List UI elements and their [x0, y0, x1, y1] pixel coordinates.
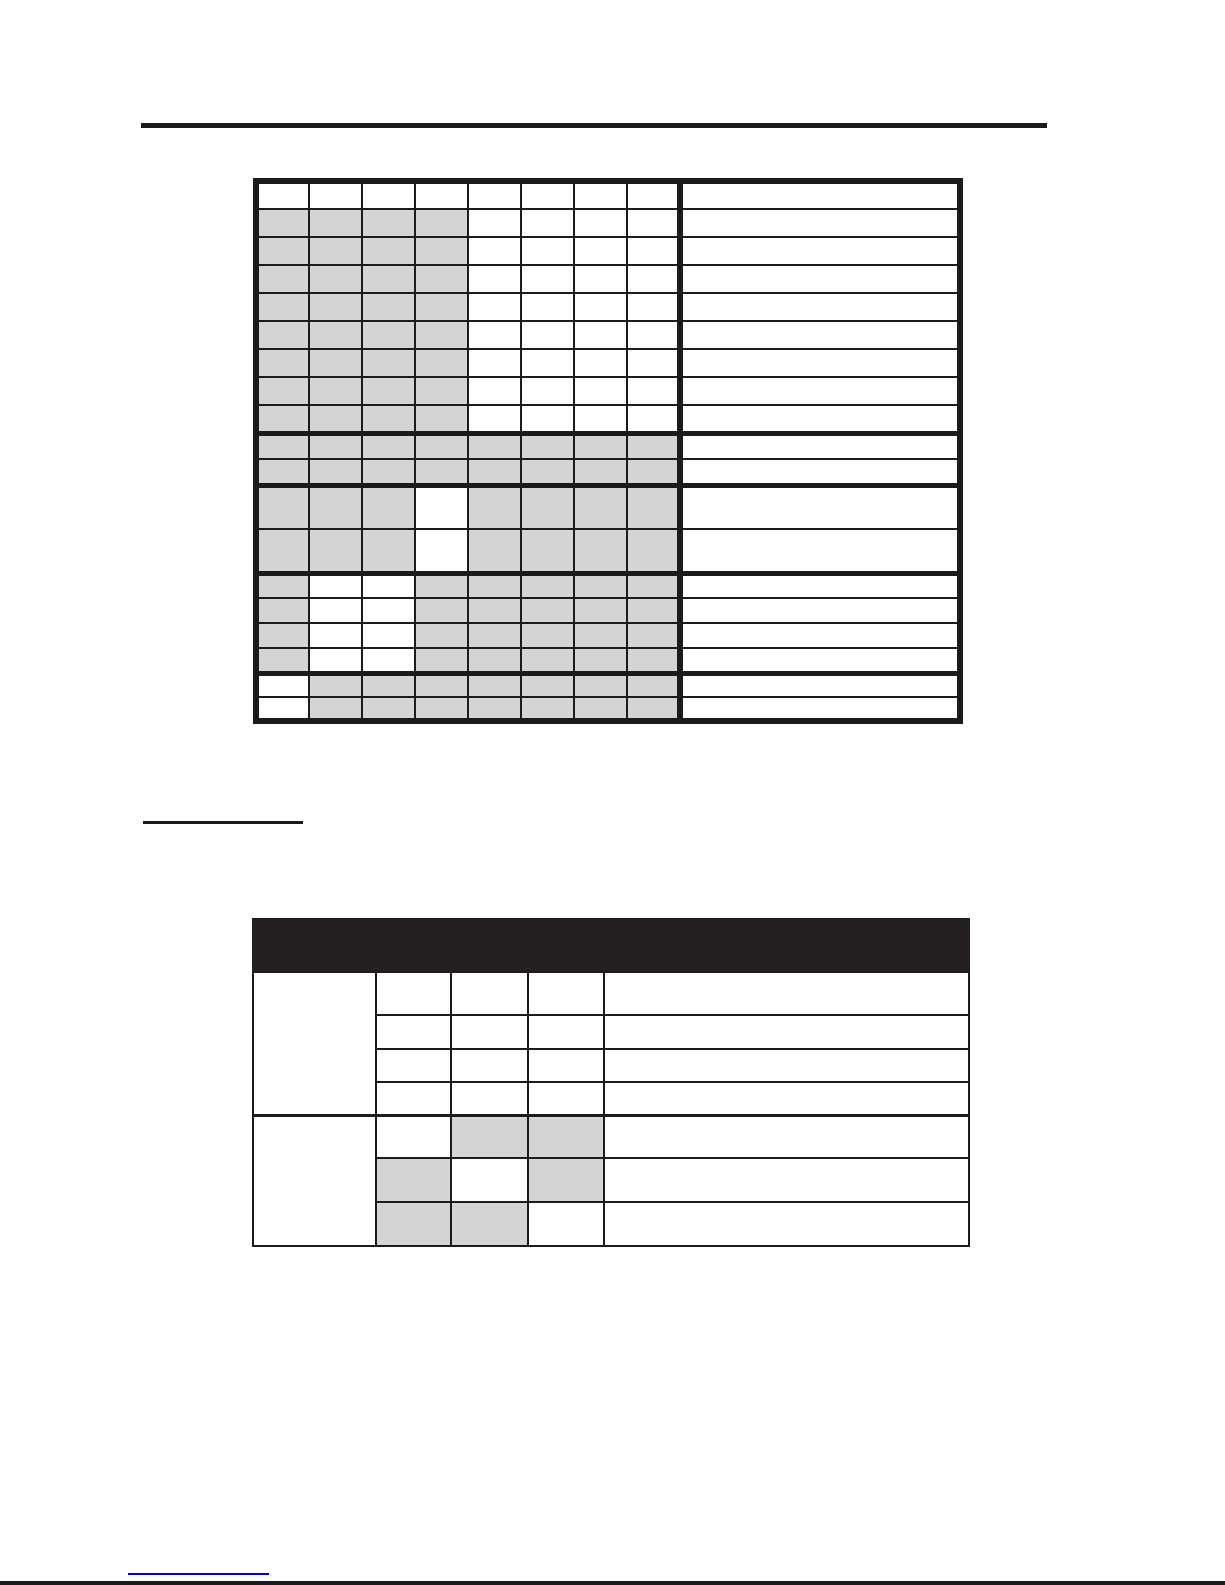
- shaded-switch-cell: [362, 293, 415, 321]
- switch-cell: [627, 181, 680, 209]
- description-cell: [680, 648, 960, 673]
- shaded-switch-cell: [256, 433, 309, 459]
- description-cell: [680, 237, 960, 265]
- switch-cell: [528, 972, 604, 1015]
- shaded-switch-cell: [256, 485, 309, 529]
- shaded-switch-cell: [362, 349, 415, 377]
- switch-cell: [528, 1082, 604, 1115]
- description-cell: [680, 433, 960, 459]
- shaded-switch-cell: [362, 697, 415, 721]
- shaded-switch-cell: [362, 209, 415, 237]
- switch-cell: [468, 293, 521, 321]
- shaded-switch-cell: [574, 697, 627, 721]
- shaded-switch-cell: [415, 349, 468, 377]
- switch-cell: [468, 181, 521, 209]
- switch-cell: [468, 237, 521, 265]
- switch-cell: [362, 573, 415, 598]
- shaded-switch-cell: [415, 321, 468, 349]
- shaded-switch-cell: [362, 237, 415, 265]
- shaded-switch-cell: [468, 598, 521, 623]
- switch-cell: [451, 1158, 528, 1202]
- shaded-switch-cell: [415, 598, 468, 623]
- shaded-switch-cell: [574, 573, 627, 598]
- shaded-switch-cell: [627, 623, 680, 648]
- switch-cell: [468, 321, 521, 349]
- shaded-switch-cell: [574, 529, 627, 573]
- shaded-switch-cell: [362, 529, 415, 573]
- description-cell: [680, 209, 960, 237]
- table-row: [253, 1115, 969, 1158]
- shaded-switch-cell: [627, 648, 680, 673]
- table-row: [253, 972, 969, 1015]
- switch-cell: [528, 1049, 604, 1082]
- shaded-switch-cell: [309, 529, 362, 573]
- shaded-switch-cell: [362, 433, 415, 459]
- shaded-switch-cell: [451, 1202, 528, 1246]
- switch-cell: [415, 529, 468, 573]
- shaded-switch-cell: [415, 293, 468, 321]
- description-cell: [680, 181, 960, 209]
- switch-cell: [521, 405, 574, 433]
- shaded-switch-cell: [627, 433, 680, 459]
- table-row: [256, 459, 960, 485]
- shaded-switch-cell: [362, 377, 415, 405]
- page-bottom-rule: [0, 1581, 1225, 1585]
- switch-cell: [468, 405, 521, 433]
- row-group-label-cell: [253, 1115, 376, 1246]
- shaded-switch-cell: [468, 485, 521, 529]
- description-cell: [604, 1015, 969, 1049]
- shaded-switch-cell: [415, 433, 468, 459]
- shaded-switch-cell: [309, 209, 362, 237]
- shaded-switch-cell: [451, 1115, 528, 1158]
- shaded-switch-cell: [309, 433, 362, 459]
- switch-cell: [362, 648, 415, 673]
- shaded-switch-cell: [256, 349, 309, 377]
- shaded-switch-cell: [521, 529, 574, 573]
- shaded-switch-cell: [468, 529, 521, 573]
- shaded-switch-cell: [309, 265, 362, 293]
- table-row: [256, 209, 960, 237]
- switch-cell: [309, 573, 362, 598]
- switch-cell: [415, 181, 468, 209]
- switch-cell: [415, 485, 468, 529]
- shaded-switch-cell: [256, 405, 309, 433]
- description-cell: [604, 1158, 969, 1202]
- description-cell: [680, 623, 960, 648]
- shaded-switch-cell: [627, 529, 680, 573]
- shaded-switch-cell: [256, 648, 309, 673]
- shaded-switch-cell: [362, 459, 415, 485]
- shaded-switch-cell: [415, 697, 468, 721]
- shaded-switch-cell: [256, 573, 309, 598]
- shaded-switch-cell: [415, 209, 468, 237]
- description-cell: [604, 1202, 969, 1246]
- description-cell: [680, 697, 960, 721]
- description-cell: [680, 293, 960, 321]
- switch-cell: [309, 623, 362, 648]
- shaded-switch-cell: [256, 377, 309, 405]
- switch-cell: [362, 598, 415, 623]
- description-cell: [680, 265, 960, 293]
- switch-cell: [451, 1082, 528, 1115]
- shaded-switch-cell: [309, 293, 362, 321]
- description-cell: [680, 673, 960, 697]
- table-row: [256, 648, 960, 673]
- switch-cell: [574, 321, 627, 349]
- switch-cell: [528, 1015, 604, 1049]
- shaded-switch-cell: [574, 648, 627, 673]
- shaded-switch-cell: [574, 459, 627, 485]
- shaded-switch-cell: [627, 598, 680, 623]
- shaded-switch-cell: [256, 623, 309, 648]
- shaded-switch-cell: [468, 648, 521, 673]
- description-cell: [604, 1049, 969, 1082]
- switch-cell: [574, 181, 627, 209]
- switch-cell: [468, 377, 521, 405]
- switch-cell: [627, 209, 680, 237]
- shaded-switch-cell: [256, 459, 309, 485]
- table-row: [256, 181, 960, 209]
- shaded-switch-cell: [362, 485, 415, 529]
- shaded-switch-cell: [521, 697, 574, 721]
- shaded-switch-cell: [574, 485, 627, 529]
- switch-cell: [521, 209, 574, 237]
- description-cell: [680, 321, 960, 349]
- shaded-switch-cell: [574, 433, 627, 459]
- switch-cell: [574, 237, 627, 265]
- table-row: [256, 673, 960, 697]
- description-cell: [604, 1115, 969, 1158]
- shaded-switch-cell: [309, 377, 362, 405]
- table-row: [256, 697, 960, 721]
- shaded-switch-cell: [309, 237, 362, 265]
- switch-cell: [627, 321, 680, 349]
- shaded-switch-cell: [362, 673, 415, 697]
- description-cell: [604, 1082, 969, 1115]
- table-row: [256, 598, 960, 623]
- shaded-switch-cell: [521, 433, 574, 459]
- switch-cell: [376, 1082, 451, 1115]
- table-row: [256, 349, 960, 377]
- shaded-switch-cell: [468, 433, 521, 459]
- switch-cell: [521, 321, 574, 349]
- description-cell: [680, 405, 960, 433]
- description-cell: [680, 485, 960, 529]
- shaded-switch-cell: [627, 485, 680, 529]
- switch-cell: [521, 293, 574, 321]
- shaded-switch-cell: [468, 459, 521, 485]
- switch-cell: [627, 405, 680, 433]
- shaded-switch-cell: [415, 623, 468, 648]
- description-cell: [680, 598, 960, 623]
- shaded-switch-cell: [521, 598, 574, 623]
- shaded-switch-cell: [256, 237, 309, 265]
- table-row: [256, 485, 960, 529]
- switch-cell: [627, 349, 680, 377]
- shaded-switch-cell: [627, 459, 680, 485]
- switch-cell: [627, 377, 680, 405]
- shaded-switch-cell: [521, 673, 574, 697]
- shaded-switch-cell: [468, 697, 521, 721]
- shaded-switch-cell: [521, 485, 574, 529]
- switch-cell: [521, 349, 574, 377]
- switch-cell: [574, 209, 627, 237]
- shaded-switch-cell: [574, 623, 627, 648]
- description-cell: [680, 349, 960, 377]
- shaded-switch-cell: [362, 405, 415, 433]
- shaded-switch-cell: [627, 697, 680, 721]
- description-cell: [680, 529, 960, 573]
- switch-cell: [376, 1049, 451, 1082]
- switch-cell: [468, 265, 521, 293]
- section-heading-underline: [143, 821, 303, 824]
- shaded-switch-cell: [415, 265, 468, 293]
- shaded-switch-cell: [627, 673, 680, 697]
- switch-cell: [574, 265, 627, 293]
- switch-cell: [451, 1049, 528, 1082]
- switch-cell: [256, 181, 309, 209]
- table-row: [256, 573, 960, 598]
- switch-cell: [574, 293, 627, 321]
- shaded-switch-cell: [256, 209, 309, 237]
- description-cell: [680, 459, 960, 485]
- shaded-switch-cell: [309, 405, 362, 433]
- shaded-switch-cell: [256, 293, 309, 321]
- shaded-switch-cell: [256, 265, 309, 293]
- switch-cell: [521, 181, 574, 209]
- switch-cell: [309, 598, 362, 623]
- switch-cell: [528, 1202, 604, 1246]
- switch-cell: [521, 377, 574, 405]
- shaded-switch-cell: [415, 459, 468, 485]
- shaded-switch-cell: [309, 321, 362, 349]
- table-row: [256, 293, 960, 321]
- top-rule: [141, 123, 1047, 128]
- switch-cell: [627, 237, 680, 265]
- shaded-switch-cell: [521, 573, 574, 598]
- table-row: [256, 265, 960, 293]
- shaded-switch-cell: [528, 1115, 604, 1158]
- shaded-switch-cell: [415, 648, 468, 673]
- shaded-switch-cell: [415, 405, 468, 433]
- switch-cell: [451, 1015, 528, 1049]
- description-cell: [604, 972, 969, 1015]
- switch-cell: [574, 377, 627, 405]
- table-row: [256, 321, 960, 349]
- shaded-switch-cell: [376, 1158, 451, 1202]
- shaded-switch-cell: [309, 485, 362, 529]
- switch-cell: [468, 349, 521, 377]
- shaded-switch-cell: [627, 573, 680, 598]
- switch-cell: [309, 648, 362, 673]
- description-cell: [680, 377, 960, 405]
- switch-cell: [362, 181, 415, 209]
- shaded-switch-cell: [415, 377, 468, 405]
- shaded-switch-cell: [256, 529, 309, 573]
- settings-matrix-table: [253, 178, 963, 724]
- shaded-switch-cell: [256, 598, 309, 623]
- switch-cell: [376, 1015, 451, 1049]
- switch-cell: [574, 349, 627, 377]
- shaded-switch-cell: [376, 1202, 451, 1246]
- shaded-switch-cell: [415, 673, 468, 697]
- switch-cell: [451, 972, 528, 1015]
- shaded-switch-cell: [362, 265, 415, 293]
- shaded-switch-cell: [574, 673, 627, 697]
- shaded-switch-cell: [309, 349, 362, 377]
- switch-cell: [256, 673, 309, 697]
- table-row: [256, 433, 960, 459]
- shaded-switch-cell: [362, 321, 415, 349]
- switch-cell: [521, 237, 574, 265]
- document-page: [0, 0, 1225, 1585]
- shaded-switch-cell: [521, 623, 574, 648]
- switch-cell: [521, 265, 574, 293]
- shaded-switch-cell: [309, 459, 362, 485]
- footer-link-underline[interactable]: [128, 1573, 269, 1575]
- shaded-switch-cell: [309, 673, 362, 697]
- shaded-switch-cell: [256, 321, 309, 349]
- switch-cell: [362, 623, 415, 648]
- shaded-switch-cell: [521, 648, 574, 673]
- switch-cell: [376, 1115, 451, 1158]
- shaded-switch-cell: [468, 573, 521, 598]
- shaded-switch-cell: [415, 237, 468, 265]
- table-row: [256, 377, 960, 405]
- shaded-switch-cell: [415, 573, 468, 598]
- table-row: [256, 405, 960, 433]
- row-group-label-cell: [253, 972, 376, 1115]
- shaded-switch-cell: [521, 459, 574, 485]
- shaded-switch-cell: [468, 673, 521, 697]
- shaded-switch-cell: [309, 697, 362, 721]
- shaded-switch-cell: [468, 623, 521, 648]
- shaded-switch-cell: [574, 598, 627, 623]
- switch-cell: [627, 265, 680, 293]
- table-row: [256, 623, 960, 648]
- switch-cell: [309, 181, 362, 209]
- switch-cell: [256, 697, 309, 721]
- switch-settings-table: [252, 971, 970, 1247]
- shaded-switch-cell: [528, 1158, 604, 1202]
- table-row: [256, 529, 960, 573]
- switch-cell: [574, 405, 627, 433]
- table-row: [256, 237, 960, 265]
- switch-cell: [468, 209, 521, 237]
- switch-table-header-bar: [252, 918, 970, 971]
- switch-cell: [627, 293, 680, 321]
- description-cell: [680, 573, 960, 598]
- switch-cell: [376, 972, 451, 1015]
